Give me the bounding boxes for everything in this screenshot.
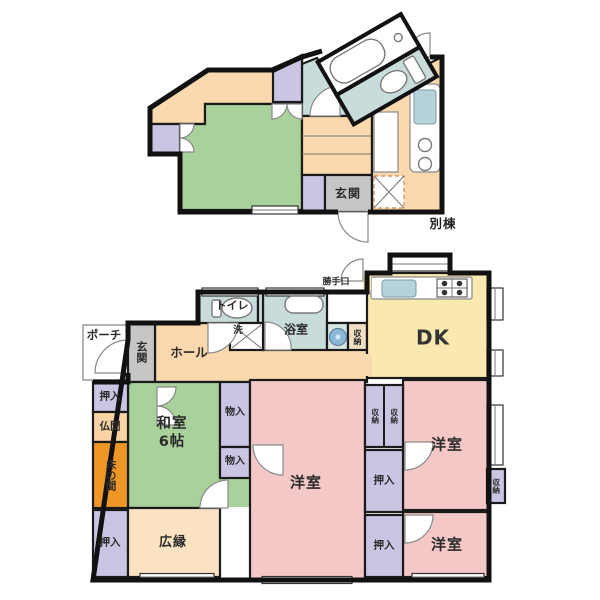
burner-icon [419,139,432,152]
room-label-oshiire: 押入 [100,390,121,403]
room-label-monoire: 物入 [225,407,245,420]
burner-icon [419,158,432,171]
burner-icon [442,290,448,296]
room-label-oshiire: 押入 [100,536,121,549]
room-label-wash: 洗 [233,325,243,337]
main-building [83,255,505,584]
bathtub [285,296,323,313]
room-label-oshiire: 押入 [374,474,395,487]
kitchen-sink [382,280,416,297]
room-label-tokonoma: 床の間 [103,459,116,491]
room-label-back-door: 勝手口 [322,277,349,288]
room-label-western: 洋室 [431,536,463,555]
room-label-porch: ポーチ [87,328,122,342]
room-label-storage: 収納 [491,479,500,494]
room-label-western: 洋室 [290,474,322,493]
room-label-western: 洋室 [431,436,463,455]
floor-plan: 玄関 別棟 勝手口 DK トイレ 洗 浴室 収納 ポーチ 玄関 ホール 押入 仏… [0,0,600,600]
room-label-storage: 収納 [352,329,362,345]
room-label-dk: DK [416,326,450,351]
door-gap [364,354,372,376]
kitchen-counter [374,112,398,172]
wall [258,292,263,323]
room-label-storage: 収納 [370,409,379,424]
room-label-hiroen: 広縁 [159,535,187,551]
door-arc [338,212,368,242]
annex-name-label: 別棟 [429,216,456,232]
annex-building [150,14,442,242]
room-label-oshiire: 押入 [374,539,395,552]
annex-closet [302,175,325,212]
room-label-bath: 浴室 [284,323,308,338]
room-label-genkan: 玄関 [134,341,148,363]
wash-basin-drain [336,335,341,340]
annex-entry-hall [302,116,372,175]
room-label-butsuma: 仏間 [100,420,121,433]
annex-closet [150,124,180,154]
room-label-annex-genkan: 玄関 [335,187,361,202]
burner-icon [442,281,448,287]
room-label-washitsu: 和室 6帖 [157,415,188,451]
burner-icon [457,281,463,287]
floor-plan-drawing [0,0,600,600]
room-label-storage: 収納 [389,409,398,424]
room-label-monoire: 物入 [225,456,245,469]
kitchen-sink [414,90,436,124]
burner-icon [457,290,463,296]
room-label-toilet: トイレ [216,299,249,313]
room-label-hall: ホール [170,345,208,361]
